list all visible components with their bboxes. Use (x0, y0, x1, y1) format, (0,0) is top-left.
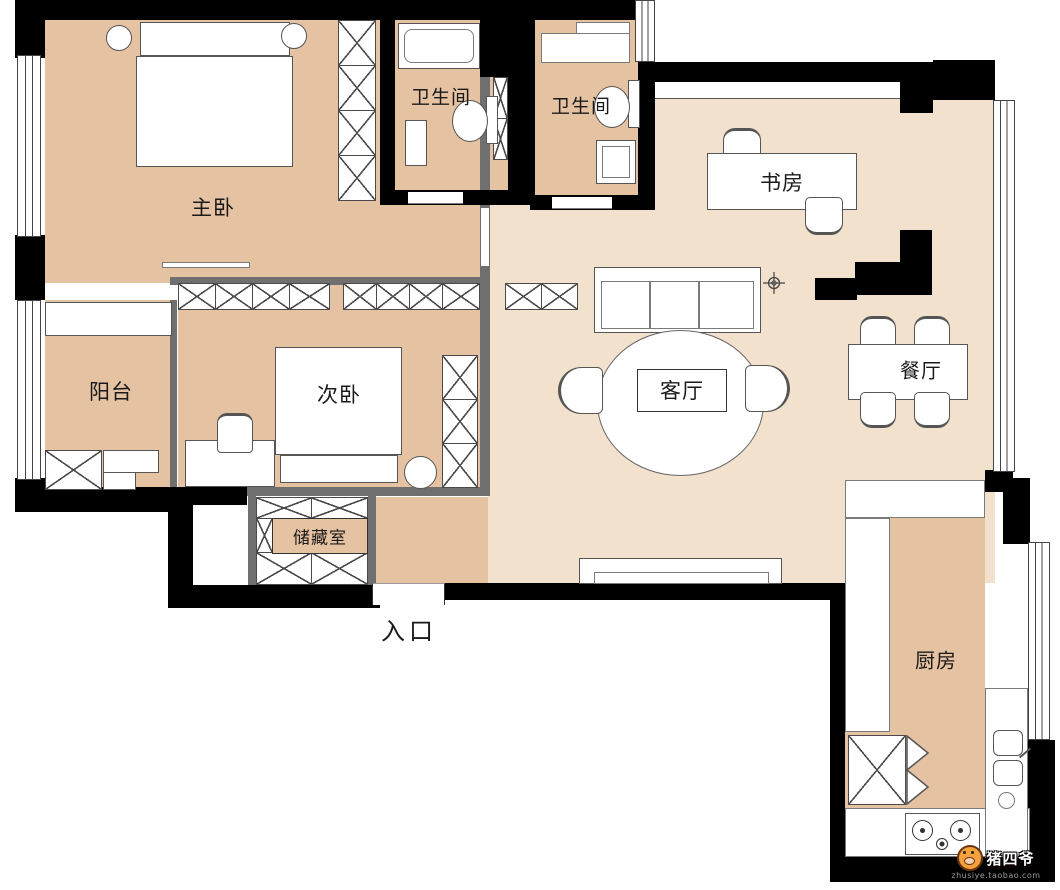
bedside-stool (404, 456, 437, 489)
balcony-shelf (45, 302, 172, 336)
window-living-right (993, 100, 1015, 472)
second-bed-footboard (280, 455, 398, 483)
sink-basin-top (993, 730, 1023, 756)
master-bed-headboard (140, 22, 290, 56)
bedroom2-wardrobe-cell (442, 399, 478, 444)
armchair-left (558, 367, 603, 414)
bathroom1-door-opening (408, 192, 463, 204)
watermark-url: zhusiye.taobao.com (935, 871, 1057, 880)
wall-left-mid (15, 235, 45, 300)
watermark: 猪四爷 zhusiye.taobao.com (935, 845, 1057, 889)
master-wardrobe-cell (338, 20, 376, 66)
stove-burner (912, 820, 933, 841)
label-study: 书房 (760, 167, 804, 197)
second-bedroom-bottom-wall (245, 487, 490, 496)
kitchen-left-counter (845, 518, 890, 732)
washing-machine (45, 450, 102, 490)
entrance-door-opening (372, 583, 445, 605)
bedroom2-wardrobe-cell (442, 355, 478, 400)
master-wardrobe-cell (338, 110, 376, 156)
closet-cell (215, 283, 253, 310)
bathtub-inner (404, 29, 474, 63)
label-balcony: 阳台 (89, 376, 133, 406)
storage-cell (256, 497, 312, 519)
storage-cell (256, 552, 312, 585)
wall-bathroom1-corner (480, 0, 508, 77)
wall-top-right-corner (933, 60, 995, 100)
wall-bathroom2-right (638, 62, 655, 210)
closet-cell (442, 283, 480, 310)
window-master-left (17, 55, 41, 237)
master-door-opening (481, 208, 489, 266)
balcony-table (103, 450, 159, 473)
dining-chair (860, 392, 896, 428)
closet-cell (289, 283, 330, 310)
fridge (848, 735, 906, 805)
study-window-sill (655, 82, 900, 99)
sink-drain (998, 792, 1015, 809)
window-kitchen-right (1028, 542, 1050, 740)
master-bedroom-floor-ext (380, 205, 488, 283)
wall-pillar-dining-b (855, 262, 902, 295)
study-chair (805, 197, 843, 235)
wall-bottom-left (168, 585, 380, 608)
window-balcony-left (17, 300, 41, 480)
wall-living-bottom (443, 583, 835, 600)
bathroom1-vanity (405, 120, 427, 166)
closet-cell (252, 283, 290, 310)
master-closet-track (162, 262, 250, 268)
sofa-cushion (601, 281, 650, 329)
wall-right-step-b (1003, 478, 1030, 544)
pig-mascot-icon (957, 845, 983, 871)
hall-closet-cell (541, 283, 578, 310)
wall-bathroom2-top (535, 0, 637, 20)
label-master-bedroom: 主卧 (191, 192, 235, 222)
storage-cell (311, 497, 368, 519)
closet-cell (343, 283, 377, 310)
balcony-table-small (103, 472, 136, 490)
shower-cabin-inner (602, 146, 630, 178)
window-bathroom2-top (635, 0, 655, 62)
closet-cell (376, 283, 410, 310)
sofa-cushion (650, 281, 699, 329)
dining-chair (914, 392, 950, 428)
nightstand-left (106, 25, 132, 51)
label-living-room: 客厅 (660, 375, 704, 405)
sofa-cushion (699, 281, 754, 329)
label-kitchen: 厨房 (915, 645, 957, 674)
closet-cell (409, 283, 443, 310)
storage-right-wall (368, 496, 376, 585)
label-dining-room: 餐厅 (900, 355, 942, 384)
wall-bedroom2-bottom-black (180, 487, 247, 505)
nightstand-right (281, 23, 307, 49)
bathroom2-door-opening (552, 197, 612, 209)
master-bed (136, 56, 293, 167)
wall-pillar-dining-c (815, 278, 857, 300)
kitchen-pass-counter (845, 480, 985, 518)
fridge-door-swing (906, 735, 930, 805)
wall-pillar-dining-a (900, 230, 932, 295)
hall-closet-cell (505, 283, 542, 310)
label-bathroom-2: 卫生间 (551, 92, 611, 119)
stove-burner (950, 820, 971, 841)
master-wardrobe-cell (338, 155, 376, 201)
label-second-bedroom: 次卧 (317, 379, 361, 409)
wall-shaft-bathrooms (508, 0, 535, 205)
bedroom2-wardrobe-cell (442, 443, 478, 488)
wall-bathroom1-left (380, 20, 395, 205)
closet-cell (178, 283, 216, 310)
entry-hall-floor (376, 497, 488, 585)
label-storage: 储藏室 (293, 524, 347, 549)
label-bathroom-1: 卫生间 (411, 83, 471, 110)
master-wardrobe-cell (338, 65, 376, 111)
wall-top (35, 0, 510, 20)
second-bedroom-right-wall (480, 283, 490, 487)
wall-pillar-step (900, 77, 933, 113)
floor-plan: 主卧 卫生间 卫生间 书房 阳台 次卧 储藏室 客厅 餐厅 厨房 入口 猪四爷 … (0, 0, 1060, 890)
armchair-right (745, 365, 790, 412)
ceiling-light-icon (763, 272, 785, 294)
watermark-brand: 猪四爷 (986, 848, 1034, 869)
tv-screen (594, 572, 769, 584)
sink-basin-bottom (993, 760, 1023, 786)
storage-cell (256, 518, 273, 553)
label-entrance: 入口 (381, 612, 437, 647)
wall-balcony-bottom (18, 487, 193, 512)
shower-tray-lower (541, 33, 630, 63)
storage-left-wall (248, 496, 256, 585)
wall-kitchen-left (830, 583, 845, 882)
wall-study-top (650, 62, 935, 82)
storage-cell (311, 552, 368, 585)
bedroom2-chair (217, 413, 253, 453)
